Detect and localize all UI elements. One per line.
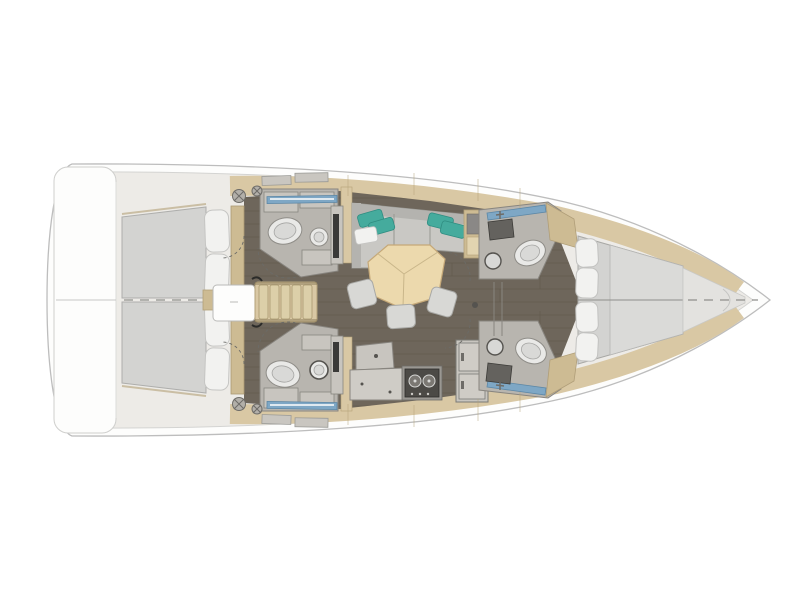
fridge-handle	[461, 381, 464, 389]
door-handle	[472, 302, 478, 308]
shower-seat	[302, 335, 332, 350]
bed-mattress	[122, 207, 206, 298]
burner-center	[428, 380, 431, 383]
stove-knob	[427, 393, 429, 395]
stool	[346, 278, 378, 310]
stair-tread	[292, 285, 301, 319]
washbasin-bowl	[314, 365, 324, 375]
washbasin-console	[488, 219, 514, 240]
washbasin-console	[486, 363, 512, 384]
shower-seat	[302, 250, 332, 265]
deck-hatch	[262, 415, 291, 425]
tv-screen-bottom	[333, 342, 339, 372]
pillow	[575, 332, 598, 361]
stair-edge-bottom	[255, 319, 317, 322]
stair-edge-top	[255, 282, 317, 285]
stair-tread	[270, 285, 279, 319]
pillow	[575, 268, 598, 299]
burner-center	[414, 380, 417, 383]
counter-dot	[361, 383, 364, 386]
shower-bowl	[485, 253, 501, 269]
stair-tread	[281, 285, 290, 319]
stair-tread	[259, 285, 268, 319]
plan-canvas	[0, 0, 800, 600]
counter-drain	[374, 354, 378, 358]
galley-counter	[350, 368, 404, 400]
stove-knob	[411, 393, 413, 395]
shower-bowl	[487, 339, 503, 355]
washbasin-bowl	[314, 232, 324, 242]
aft-cabin-port	[122, 204, 244, 298]
headboard	[231, 206, 244, 298]
counter-dot	[389, 391, 392, 394]
engine-box	[213, 285, 255, 321]
deck-hatch	[295, 173, 328, 183]
pillow	[575, 238, 598, 267]
companionway	[203, 277, 317, 326]
white-pillow	[354, 226, 378, 245]
stern-platform	[54, 167, 116, 433]
tv-screen-top	[333, 214, 339, 258]
threshold	[203, 290, 214, 310]
fridge-handle	[461, 353, 464, 361]
stair-tread	[303, 285, 312, 319]
stool	[386, 304, 416, 329]
deck-hatch	[295, 418, 328, 428]
yacht-floor-plan	[0, 0, 800, 600]
stair-treads	[259, 285, 312, 319]
stove-knob	[419, 393, 421, 395]
deck-hatch	[262, 175, 291, 185]
pillow	[204, 210, 229, 253]
bed-mattress	[122, 302, 206, 393]
pillow	[575, 302, 598, 333]
pillow	[204, 348, 229, 391]
